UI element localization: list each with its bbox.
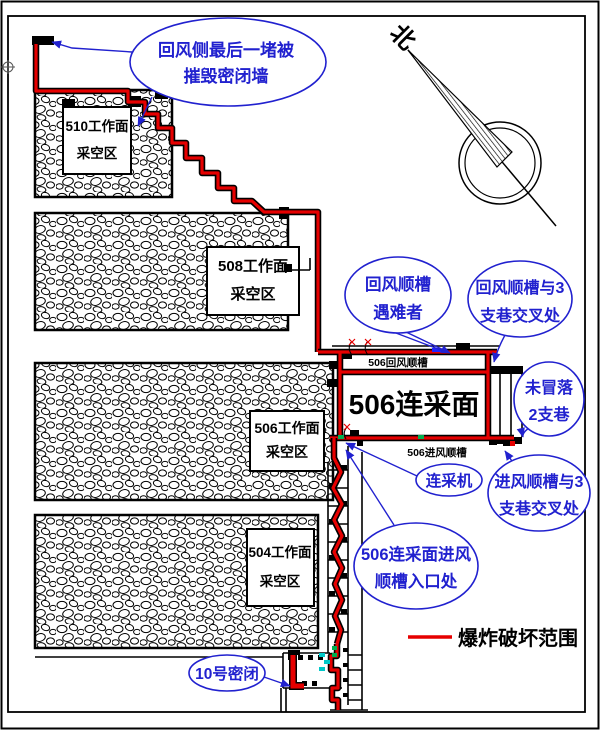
svg-text:未冒落: 未冒落 — [524, 378, 574, 397]
goaf-510: 510工作面 采空区 — [35, 90, 172, 197]
svg-text:采空区: 采空区 — [229, 285, 275, 303]
legend-label: 爆炸破坏范围 — [458, 626, 578, 650]
callout-bubble — [488, 455, 590, 531]
registration-mark-icon — [1, 60, 15, 74]
leader-line — [494, 335, 505, 362]
north-arrow: 北 — [384, 19, 556, 226]
svg-text:连采机: 连采机 — [426, 471, 473, 490]
leader-line — [52, 42, 132, 52]
north-label: 北 — [384, 19, 420, 55]
callout-victims: 回风顺槽 遇难者 — [345, 257, 451, 353]
callout-intake-junction: 进风顺槽与3 支巷交叉处 — [488, 451, 590, 531]
goaf-504-label: 504工作面 — [248, 544, 312, 560]
svg-text:回风顺槽与3: 回风顺槽与3 — [476, 278, 565, 297]
face-title: 506连采面 — [349, 389, 480, 420]
svg-text:摧毁密闭墙: 摧毁密闭墙 — [184, 66, 269, 86]
cyan-mark — [324, 660, 330, 664]
goaf-strips: 510工作面 采空区 508工作面 采空区 506工作面 采空区 504工作面 … — [35, 90, 333, 648]
svg-text:10号密闭: 10号密闭 — [195, 664, 259, 683]
cyan-mark — [319, 653, 325, 657]
svg-text:2支巷: 2支巷 — [529, 405, 571, 424]
svg-text:支巷交叉处: 支巷交叉处 — [498, 499, 580, 518]
svg-text:支巷交叉处: 支巷交叉处 — [479, 306, 561, 325]
svg-text:采空区: 采空区 — [265, 444, 308, 460]
svg-text:顺槽入口处: 顺槽入口处 — [375, 571, 458, 591]
svg-text:回风顺槽: 回风顺槽 — [365, 274, 432, 294]
goaf-508: 508工作面 采空区 — [35, 213, 299, 330]
legend: 爆炸破坏范围 — [408, 626, 578, 650]
callout-bubble — [130, 18, 326, 106]
goaf-506-label: 506工作面 — [254, 420, 319, 436]
goaf-504: 504工作面 采空区 — [35, 515, 318, 648]
callout-bubble — [468, 261, 572, 337]
svg-text:进风顺槽与3: 进风顺槽与3 — [495, 472, 584, 491]
callout-seal-10: 10号密闭 — [189, 655, 290, 691]
goaf-510-label-box — [63, 107, 131, 174]
goaf-504-label-box — [247, 529, 314, 606]
callout-uncollapsed: 未冒落 2支巷 — [514, 362, 584, 437]
green-mark — [332, 646, 337, 650]
return-airway-label: 506回风顺槽 — [368, 356, 428, 369]
leader-line — [264, 677, 290, 686]
red-mark — [510, 441, 515, 446]
diagram-canvas: 北 510工作面 采空区 508工作面 采空区 506工作面 采空区 504工作… — [0, 0, 600, 730]
svg-text:采空区: 采空区 — [77, 145, 118, 161]
green-mark — [418, 435, 424, 439]
svg-text:506连采面进风: 506连采面进风 — [361, 544, 472, 564]
callout-return-junction: 回风顺槽与3 支巷交叉处 — [468, 261, 572, 362]
goaf-508-label: 508工作面 — [218, 257, 288, 275]
green-mark — [332, 653, 337, 657]
green-mark — [338, 435, 344, 439]
goaf-510-label: 510工作面 — [65, 118, 129, 134]
svg-text:采空区: 采空区 — [260, 573, 301, 589]
compass-blade — [408, 50, 512, 167]
intake-airway-label: 506进风顺槽 — [407, 446, 467, 459]
callout-bubble — [514, 362, 584, 436]
mine-accident-diagram: 北 510工作面 采空区 508工作面 采空区 506工作面 采空区 504工作… — [0, 0, 600, 730]
cyan-mark — [319, 667, 325, 671]
goaf-506: 506工作面 采空区 — [35, 363, 333, 500]
svg-text:遇难者: 遇难者 — [373, 302, 423, 322]
svg-text:回风侧最后一堵被: 回风侧最后一堵被 — [158, 40, 294, 60]
callout-bubble — [354, 523, 478, 609]
